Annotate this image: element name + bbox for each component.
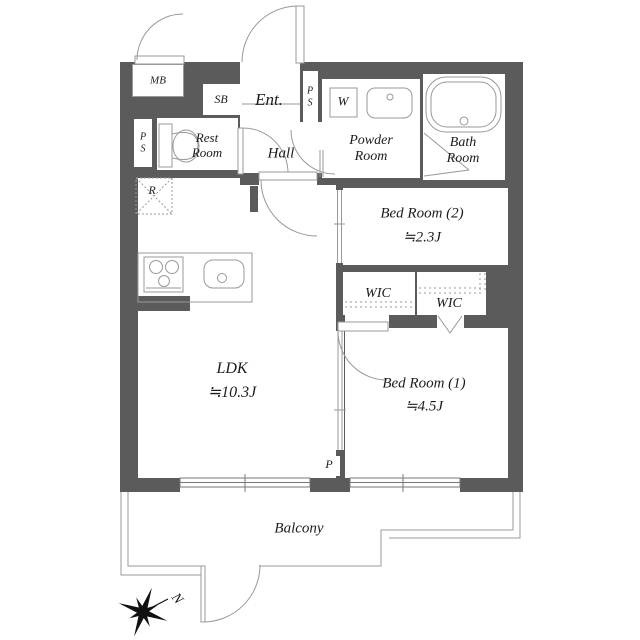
floor-plan: N MB SB Ent. P S W Powder Room Bath Room… — [0, 0, 640, 640]
bedroom2-slider-icon — [334, 190, 345, 263]
wic2-fold-door-icon — [438, 316, 462, 333]
mb-door-icon — [135, 14, 184, 64]
ldk-window-icon — [180, 474, 310, 492]
entrance-label: Ent. — [255, 90, 283, 110]
pipe-space-left-label: P S — [140, 132, 146, 155]
linework-layer: N — [0, 0, 640, 640]
bedroom1-area-label: ≒4.5J — [405, 398, 443, 415]
pipe-box-label: P — [325, 458, 332, 472]
balcony-label: Balcony — [274, 520, 323, 537]
ldk-door-icon — [259, 172, 317, 236]
hall-label: Hall — [268, 145, 295, 162]
powder-door-icon — [291, 130, 335, 177]
bedroom2-name-label: Bed Room (2) — [380, 205, 463, 222]
powder-sink-icon — [367, 88, 412, 118]
wic1-label: WIC — [365, 286, 391, 302]
bedroom2-area-label: ≒2.3J — [403, 229, 441, 246]
compass-north-label: N — [167, 590, 186, 608]
ldk-name-label: LDK — [216, 360, 247, 378]
kitchen-sink-icon — [204, 260, 244, 288]
meter-box-label: MB — [150, 75, 166, 88]
bedroom1-window-icon — [350, 474, 460, 492]
wic2-label: WIC — [436, 296, 462, 312]
bedroom1-door-icon — [338, 322, 388, 380]
pipe-space-top-label: P S — [307, 86, 313, 109]
refrigerator-label: R — [148, 184, 155, 198]
balcony-door-icon — [201, 565, 260, 622]
rest-room-label: Rest Room — [192, 131, 222, 161]
bedroom1-name-label: Bed Room (1) — [382, 375, 465, 392]
ldk-area-label: ≒10.3J — [208, 384, 257, 402]
bedroom1-slider-icon — [334, 331, 346, 450]
powder-room-label: Powder Room — [349, 133, 393, 165]
stove-icon — [144, 257, 183, 292]
bath-room-label: Bath Room — [447, 135, 480, 167]
washer-label: W — [338, 95, 349, 110]
bathtub-icon — [426, 77, 501, 132]
compass-icon: N — [119, 588, 186, 637]
shoe-box-label: SB — [214, 93, 227, 107]
